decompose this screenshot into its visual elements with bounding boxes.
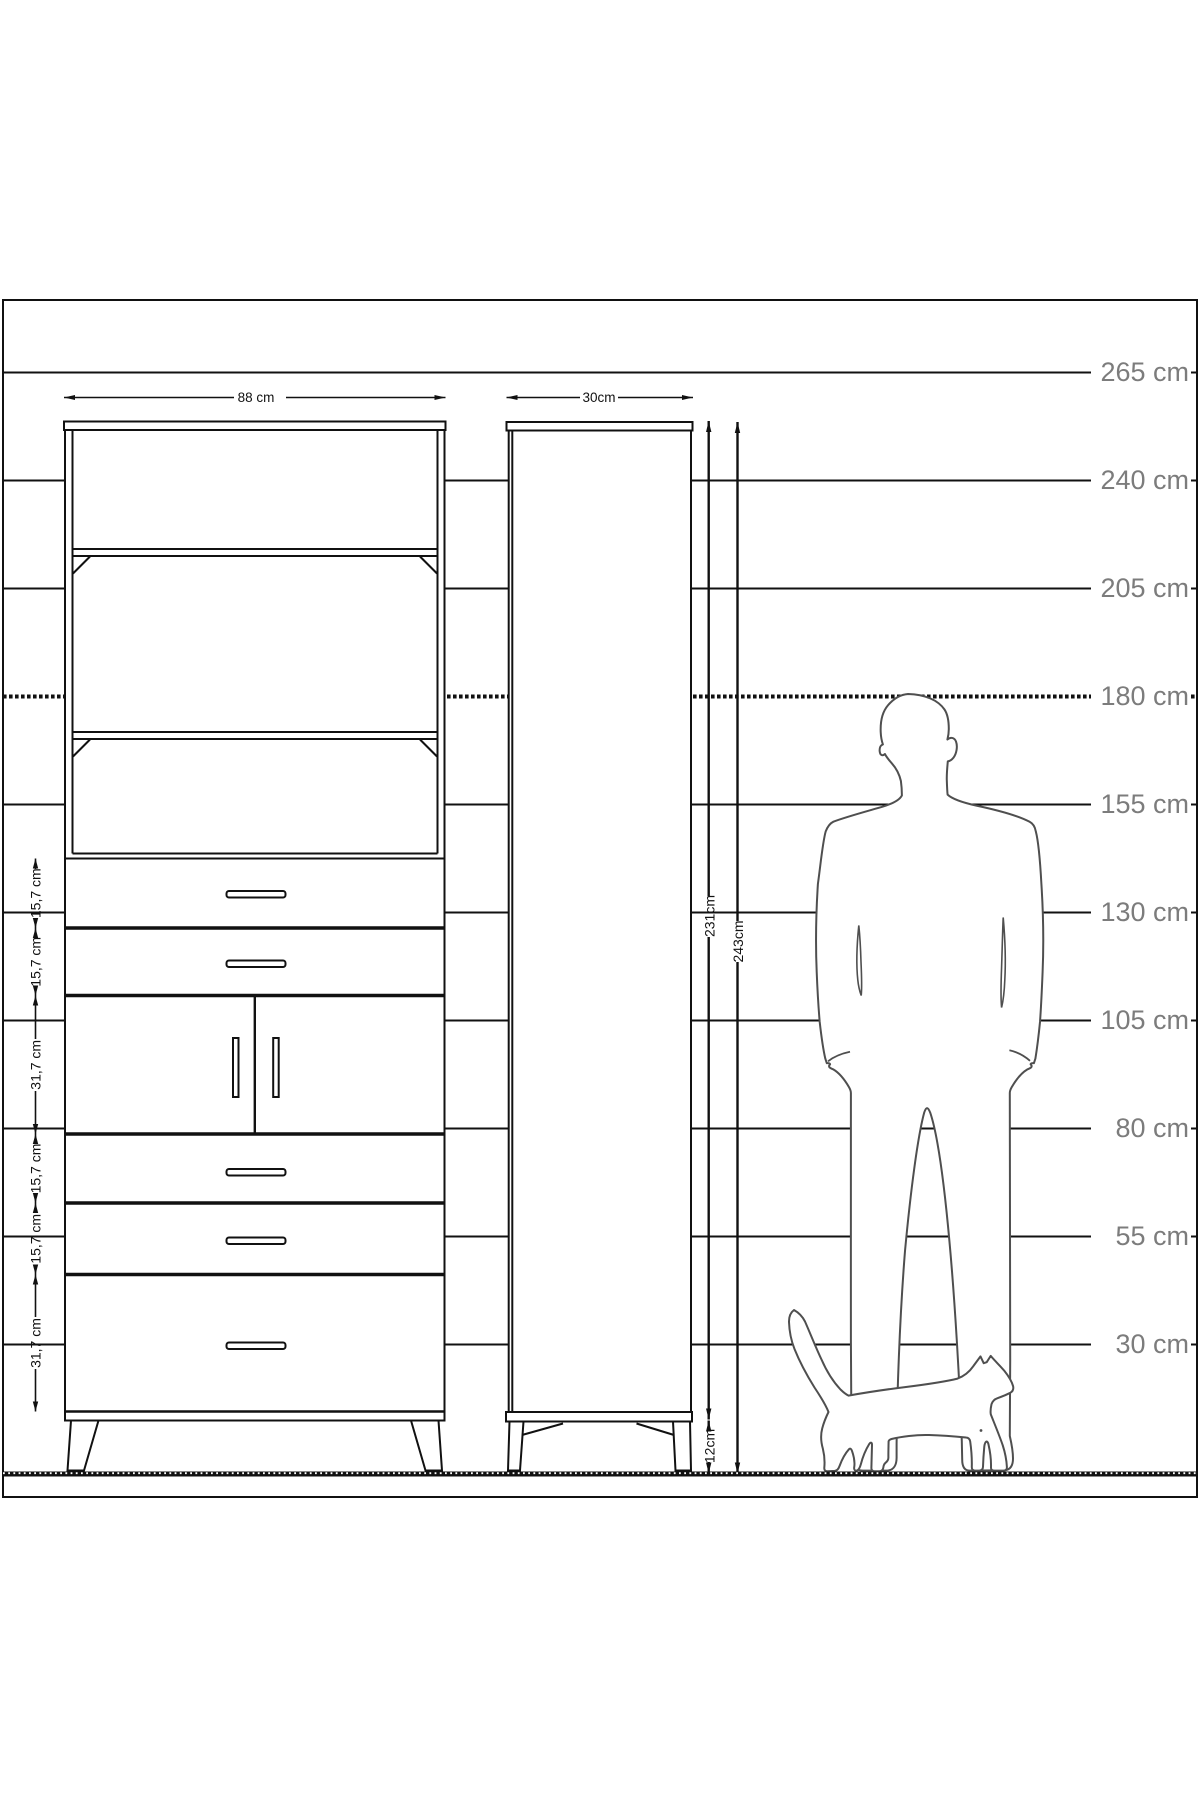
svg-text:231cm: 231cm	[702, 895, 718, 937]
svg-text:30 cm: 30 cm	[1115, 1329, 1189, 1359]
svg-text:130 cm: 130 cm	[1100, 897, 1189, 927]
svg-text:15,7 cm: 15,7 cm	[28, 868, 44, 918]
svg-text:243cm: 243cm	[730, 920, 746, 962]
svg-text:31,7 cm: 31,7 cm	[28, 1040, 44, 1090]
svg-text:80 cm: 80 cm	[1115, 1113, 1189, 1143]
svg-text:12cm: 12cm	[702, 1429, 718, 1463]
svg-text:265 cm: 265 cm	[1100, 357, 1189, 387]
svg-text:205 cm: 205 cm	[1100, 573, 1189, 603]
svg-text:31,7 cm: 31,7 cm	[28, 1318, 44, 1368]
svg-text:88 cm: 88 cm	[238, 390, 275, 405]
svg-text:55 cm: 55 cm	[1115, 1221, 1189, 1251]
svg-text:15,7 cm: 15,7 cm	[28, 1214, 44, 1264]
svg-text:155 cm: 155 cm	[1100, 789, 1189, 819]
svg-text:15,7 cm: 15,7 cm	[28, 1144, 44, 1194]
svg-text:15,7 cm: 15,7 cm	[28, 937, 44, 987]
svg-text:180 cm: 180 cm	[1100, 681, 1189, 711]
svg-text:30cm: 30cm	[582, 390, 615, 405]
svg-text:105 cm: 105 cm	[1100, 1005, 1189, 1035]
svg-text:240 cm: 240 cm	[1100, 465, 1189, 495]
